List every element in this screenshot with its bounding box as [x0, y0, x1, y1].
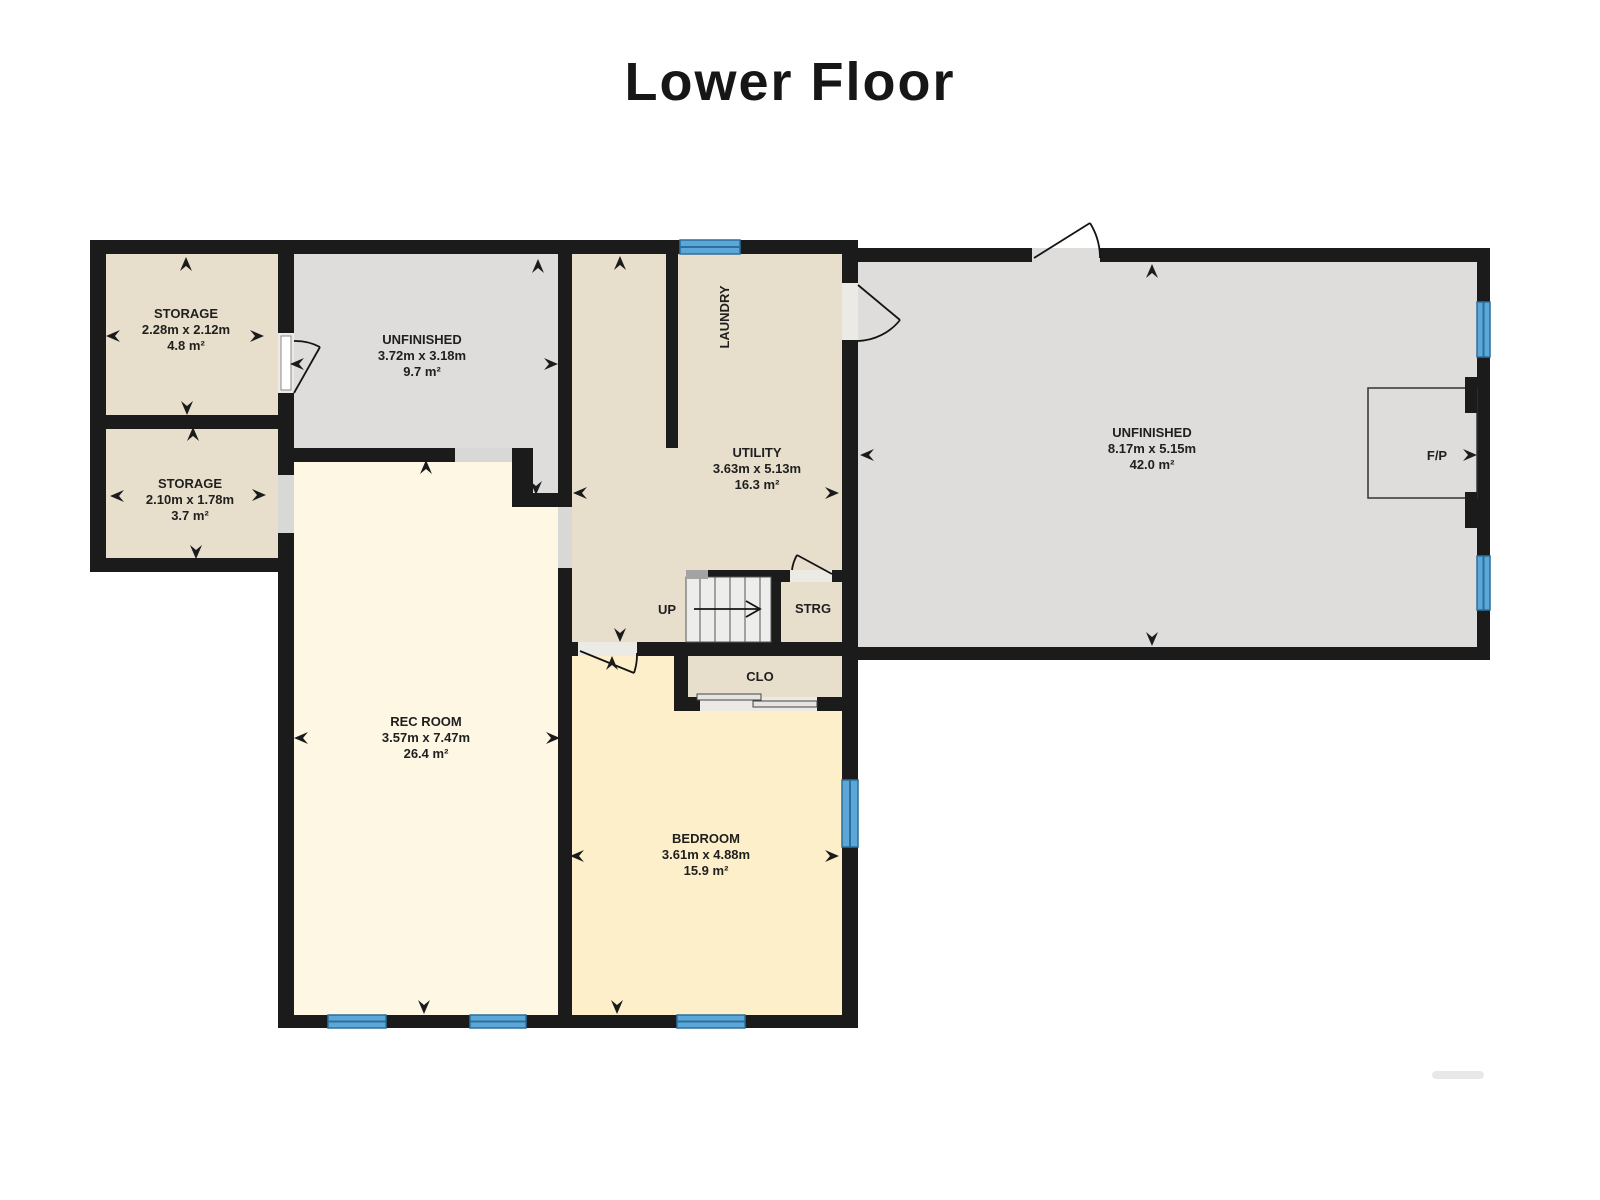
label-unfinished-small-area: 9.7 m² — [403, 364, 441, 379]
label-bedroom-area: 15.9 m² — [684, 863, 729, 878]
opening-unfinished-rec — [455, 448, 512, 462]
window — [680, 240, 740, 254]
label-rec-area: 26.4 m² — [404, 746, 449, 761]
label-storage2-area: 3.7 m² — [171, 508, 209, 523]
label-stairs-up: UP — [658, 602, 676, 617]
label-rec-dims: 3.57m x 7.47m — [382, 730, 470, 745]
label-rec-name: REC ROOM — [390, 714, 462, 729]
watermark — [1432, 1071, 1484, 1079]
window — [677, 1015, 745, 1028]
label-unfinished-large-name: UNFINISHED — [1112, 425, 1191, 440]
window — [328, 1015, 386, 1028]
window — [1477, 302, 1490, 357]
fireplace-box — [1368, 388, 1477, 498]
window — [1477, 556, 1490, 610]
label-storage1-name: STORAGE — [154, 306, 218, 321]
label-bedroom-dims: 3.61m x 4.88m — [662, 847, 750, 862]
opening-strg-door — [790, 570, 832, 582]
label-storage2-name: STORAGE — [158, 476, 222, 491]
opening-exterior-door — [1032, 248, 1100, 262]
window — [842, 780, 858, 847]
floorplan-canvas: Lower Floor — [0, 0, 1600, 1200]
label-bedroom-name: BEDROOM — [672, 831, 740, 846]
page-title: Lower Floor — [625, 52, 956, 112]
opening-utility-unfinished — [842, 283, 858, 340]
label-storage1-dims: 2.28m x 2.12m — [142, 322, 230, 337]
stair-landing — [686, 570, 708, 579]
label-unfinished-small-name: UNFINISHED — [382, 332, 461, 347]
label-unfinished-small-dims: 3.72m x 3.18m — [378, 348, 466, 363]
label-unfinished-large-area: 42.0 m² — [1130, 457, 1175, 472]
floorplan-page: Lower Floor — [0, 0, 1600, 1200]
label-fireplace: F/P — [1427, 448, 1448, 463]
label-utility-dims: 3.63m x 5.13m — [713, 461, 801, 476]
label-storage1-area: 4.8 m² — [167, 338, 205, 353]
label-unfinished-large-dims: 8.17m x 5.15m — [1108, 441, 1196, 456]
label-strg: STRG — [795, 601, 831, 616]
stairs — [686, 570, 771, 642]
window — [470, 1015, 526, 1028]
label-laundry: LAUNDRY — [717, 285, 732, 348]
label-storage2-dims: 2.10m x 1.78m — [146, 492, 234, 507]
opening-storage2-rec — [278, 475, 294, 533]
label-utility-name: UTILITY — [732, 445, 781, 460]
label-utility-area: 16.3 m² — [735, 477, 780, 492]
room-fills — [106, 254, 1477, 1015]
opening-rec-utility — [558, 507, 572, 568]
label-clo: CLO — [746, 669, 773, 684]
